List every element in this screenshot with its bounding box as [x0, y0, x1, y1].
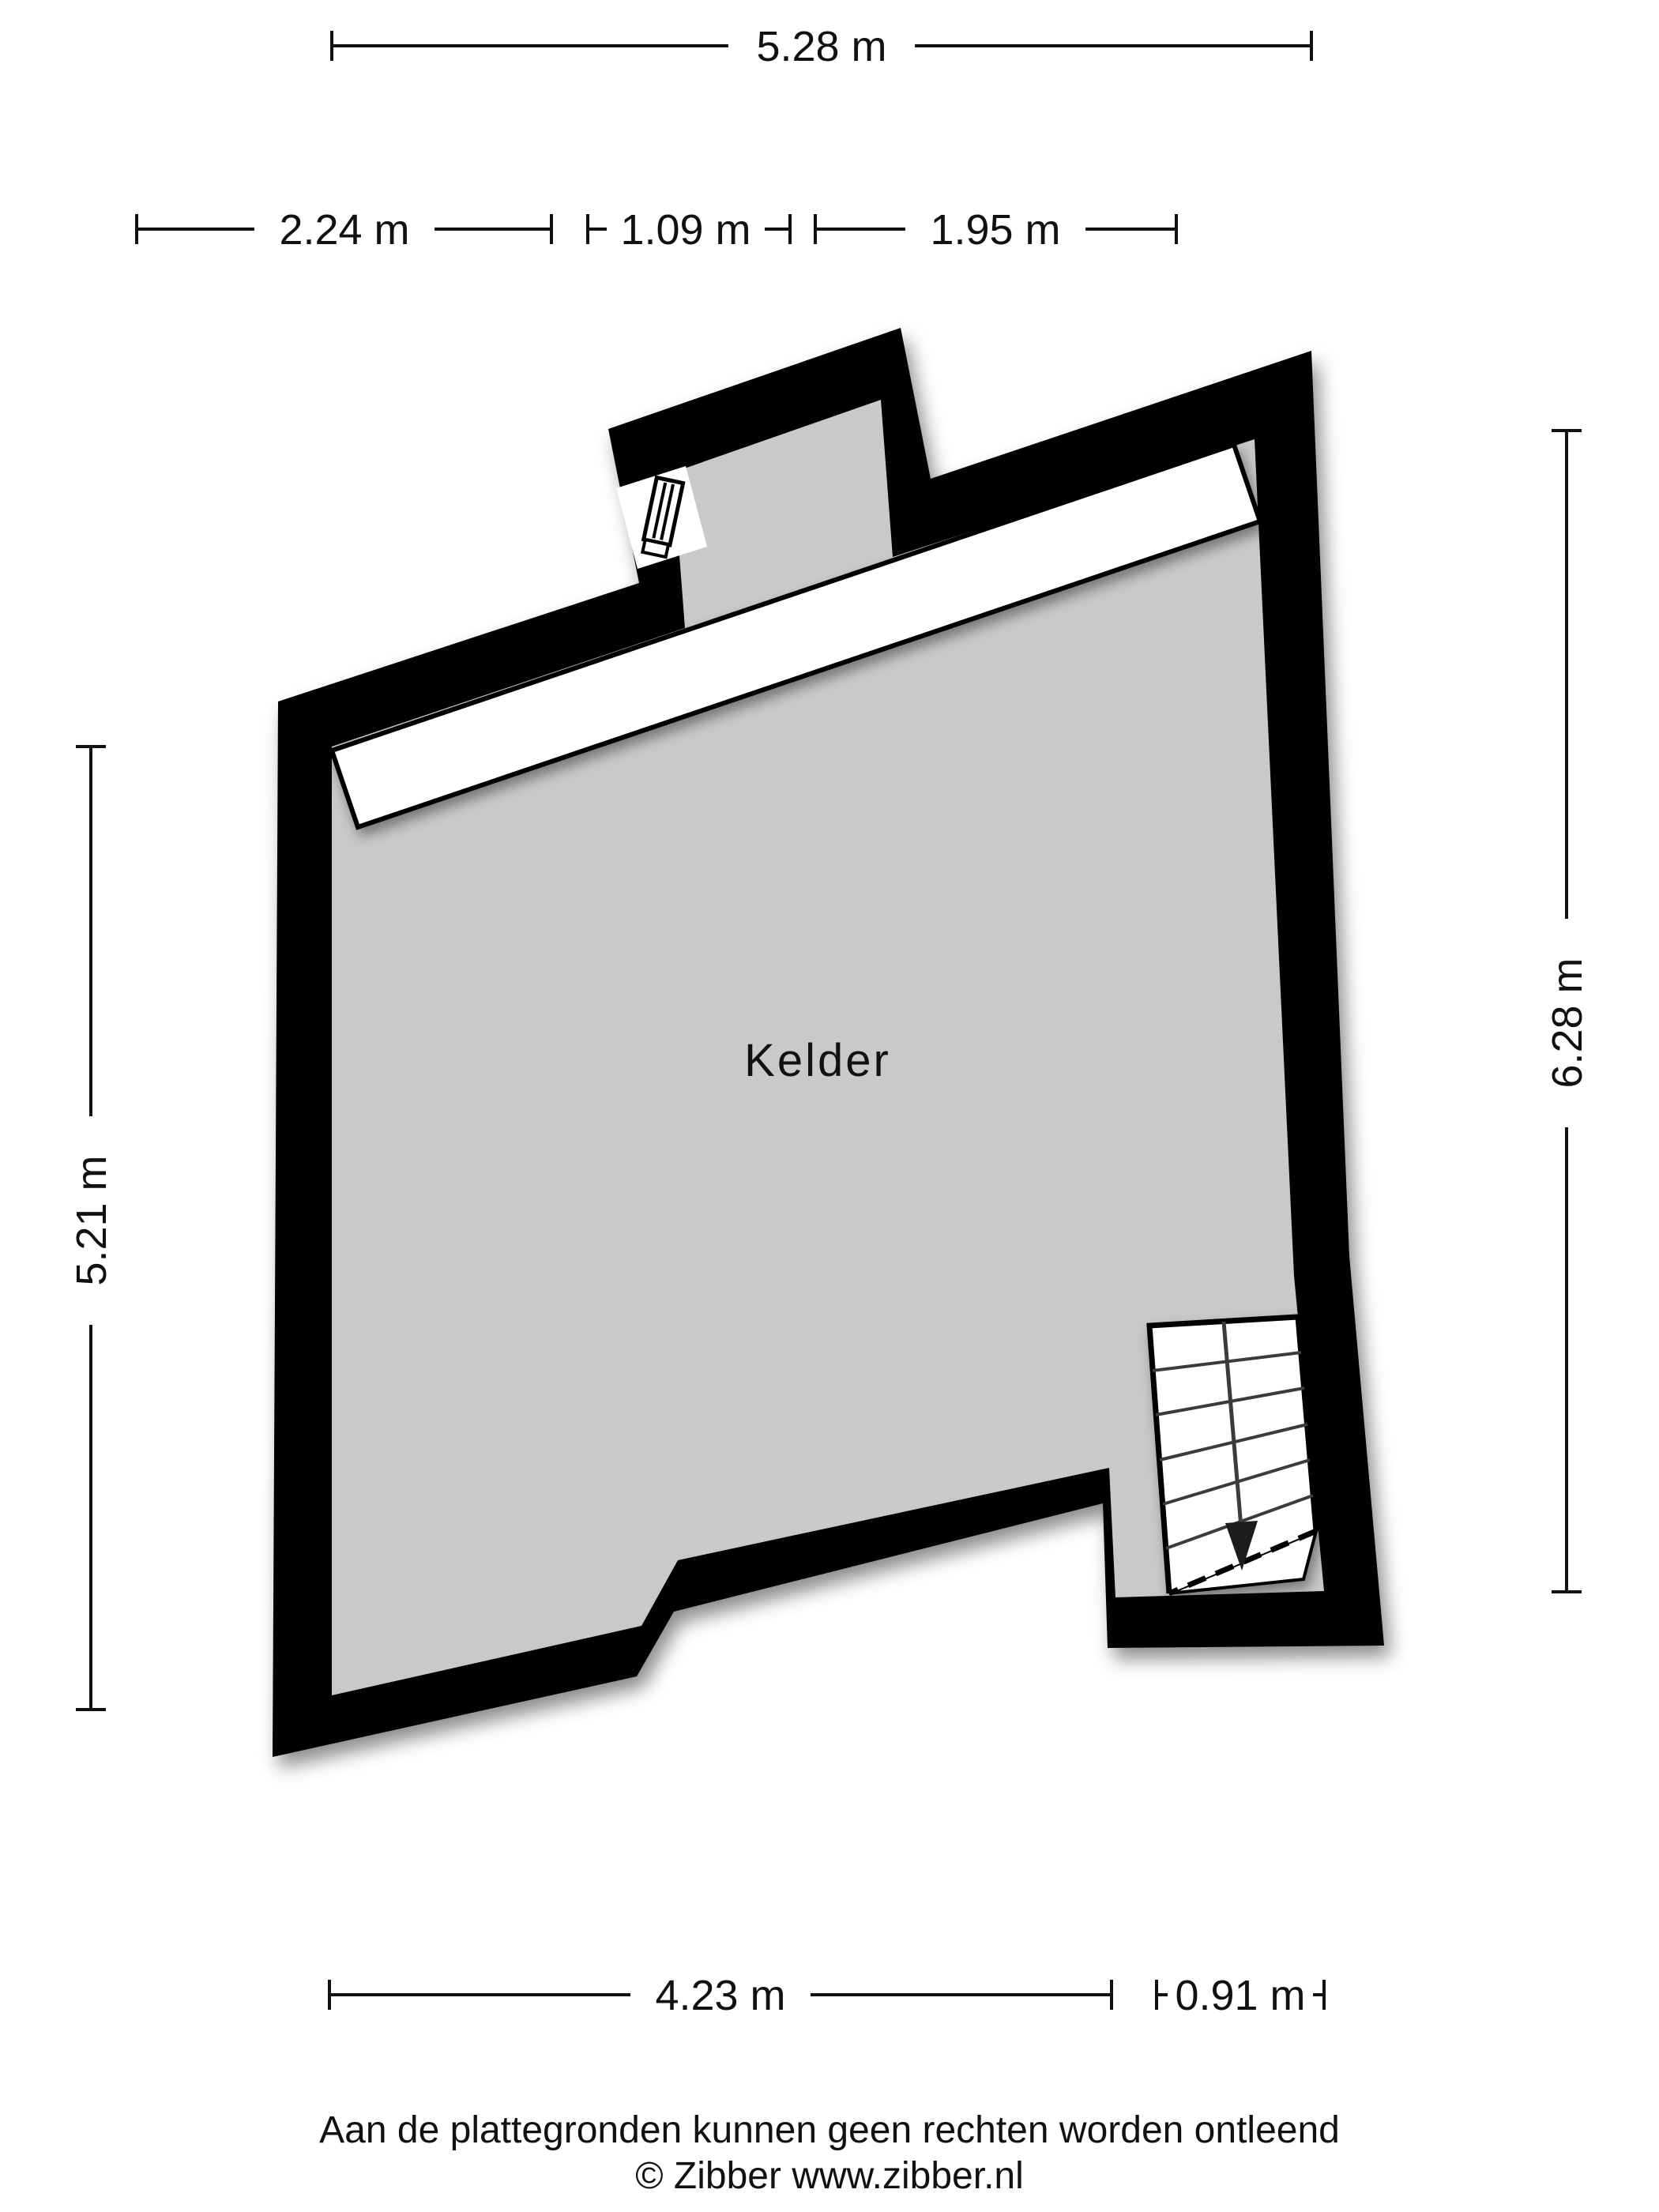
staircase	[1149, 1317, 1316, 1593]
dim-right: 6.28 m	[1544, 957, 1591, 1088]
dim-bottom-stairs: 0.91 m	[1175, 1972, 1305, 2019]
footer-disclaimer: Aan de plattegronden kunnen geen rechten…	[319, 2109, 1340, 2151]
dim-left: 5.21 m	[68, 1155, 115, 1285]
dim-upper-mid: 1.09 m	[620, 206, 750, 254]
footer-credit: © Zibber www.zibber.nl	[635, 2155, 1024, 2197]
floorplan-page: Kelder	[0, 0, 1659, 2212]
room-label: Kelder	[744, 1035, 891, 1086]
floorplan-canvas: Kelder	[0, 0, 1659, 2212]
dim-bottom-main: 4.23 m	[655, 1972, 785, 2019]
dim-upper-right: 1.95 m	[930, 206, 1060, 254]
dim-upper-left: 2.24 m	[279, 206, 409, 254]
dim-top: 5.28 m	[756, 23, 886, 70]
